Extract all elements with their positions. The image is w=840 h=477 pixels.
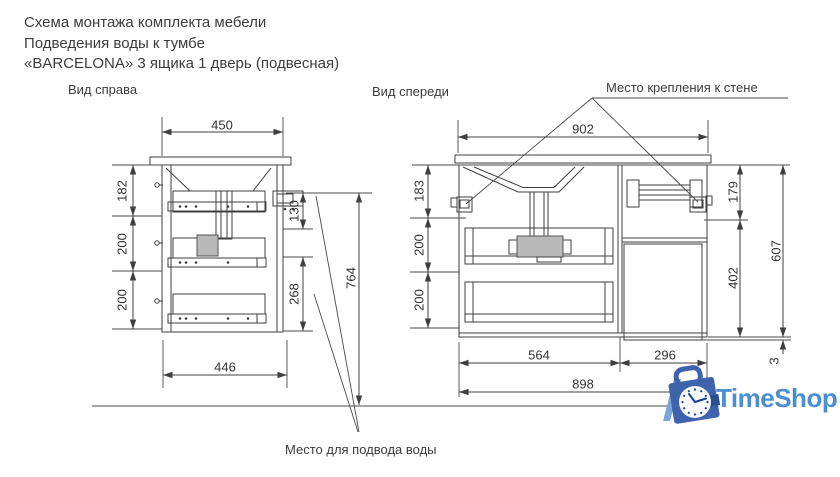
title-line-1: Схема монтажа комплекта мебели — [24, 13, 339, 34]
front-cabinet-body — [459, 165, 707, 337]
front-wall-bracket-right — [690, 196, 712, 212]
dim-side-drawer2: 200 — [115, 233, 130, 255]
wall-mount-annotation: Место крепления к стене — [606, 80, 758, 95]
leader-lines — [314, 98, 788, 432]
front-countertop — [455, 155, 711, 163]
water-supply-annotation: Место для подвода воды — [285, 442, 437, 457]
side-drawer-slides — [168, 202, 266, 323]
side-sink-bowl — [166, 168, 271, 191]
timeshop-logo-text: TimeShop — [716, 383, 837, 414]
dim-front-door-width: 296 — [654, 348, 676, 363]
front-sink-bowl — [463, 167, 584, 192]
dim-front-drawer3: 200 — [412, 289, 427, 311]
logo-clock — [679, 386, 711, 418]
front-wall-bracket-left — [451, 197, 472, 212]
slide-screw-dots — [179, 205, 250, 320]
front-door-panel — [624, 244, 702, 340]
dim-front-width-top: 902 — [572, 122, 594, 137]
side-drain-pipe — [216, 191, 232, 239]
dim-side-drawer1: 182 — [115, 180, 130, 202]
side-view-drawing — [150, 157, 303, 332]
dim-side-width-bottom: 446 — [214, 360, 236, 375]
front-siphon — [509, 236, 571, 262]
dim-front-drawer1: 183 — [412, 180, 427, 202]
dim-front-right-top: 179 — [726, 181, 741, 203]
front-drawer-2 — [465, 282, 613, 322]
dim-front-right-door: 402 — [726, 267, 741, 289]
front-towel-rail — [627, 180, 702, 207]
dim-side-width-top: 450 — [211, 118, 233, 133]
dim-side-bracket: 130 — [287, 200, 302, 222]
front-drain-pipe — [530, 192, 548, 238]
extension-lines — [112, 117, 791, 397]
dim-side-lower-back: 268 — [287, 283, 302, 305]
dim-side-mount-height: 764 — [344, 267, 359, 289]
dim-side-drawer3: 200 — [115, 289, 130, 311]
side-siphon — [197, 235, 218, 256]
dim-front-height: 607 — [769, 240, 784, 262]
dim-front-drawers-width: 564 — [528, 348, 550, 363]
side-view-label: Вид справа — [68, 82, 137, 97]
front-view-label: Вид спереди — [372, 84, 449, 99]
dim-front-width-bottom: 898 — [572, 377, 594, 392]
title-line-2: Подведения воды к тумбе — [24, 34, 339, 55]
side-countertop — [150, 157, 291, 165]
drawing-title: Схема монтажа комплекта мебели Подведени… — [24, 13, 339, 75]
timeshop-logo-mark — [663, 364, 722, 424]
furniture-assembly-diagram-page: Схема монтажа комплекта мебели Подведени… — [0, 0, 840, 477]
dim-front-drawer2: 200 — [412, 234, 427, 256]
dim-front-door-gap: 3 — [767, 357, 782, 364]
front-view-drawing — [451, 155, 712, 340]
title-line-3: «BARCELONA» 3 ящика 1 дверь (подвесная) — [24, 54, 339, 75]
